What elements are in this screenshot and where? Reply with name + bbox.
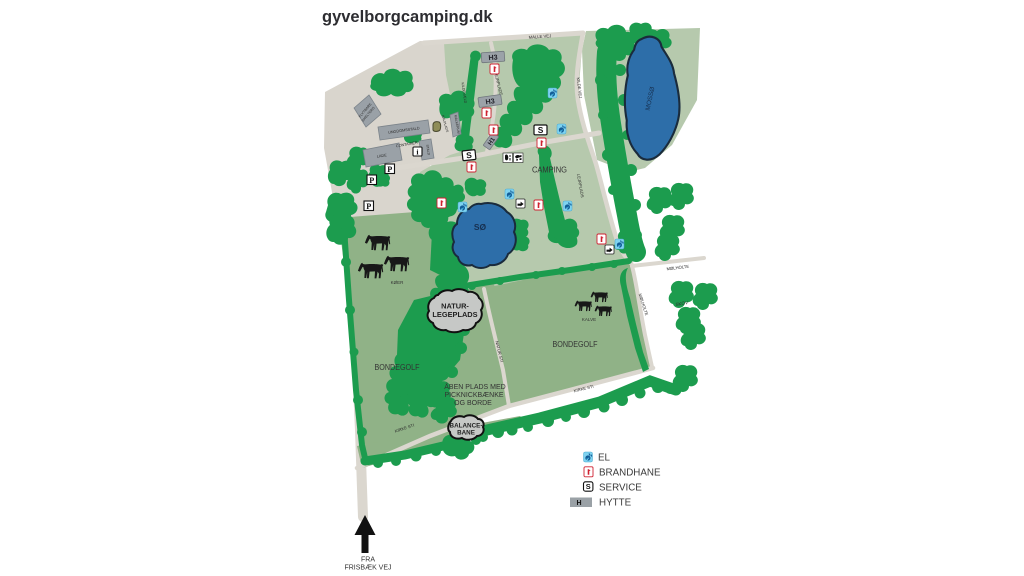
svg-text:SØ: SØ xyxy=(474,222,487,232)
svg-text:SERVICE: SERVICE xyxy=(599,483,642,494)
svg-text:OG BORDE: OG BORDE xyxy=(454,400,492,407)
svg-text:HYTTE: HYTTE xyxy=(599,498,632,509)
svg-text:KØER: KØER xyxy=(391,280,405,285)
svg-text:FRA: FRA xyxy=(361,557,375,564)
svg-text:BRANDHANE: BRANDHANE xyxy=(599,468,661,479)
svg-text:BONDEGOLF: BONDEGOLF xyxy=(375,363,420,372)
svg-text:gyvelborgcamping.dk: gyvelborgcamping.dk xyxy=(322,8,493,26)
svg-text:FRISBÆK VEJ: FRISBÆK VEJ xyxy=(344,565,391,572)
svg-text:EL: EL xyxy=(598,453,611,464)
svg-text:ÅBEN PLADS MED: ÅBEN PLADS MED xyxy=(444,382,505,391)
svg-text:PICKNICKBÆNKE: PICKNICKBÆNKE xyxy=(444,392,503,399)
svg-text:CAMPING: CAMPING xyxy=(532,166,567,175)
svg-text:H: H xyxy=(576,500,581,507)
svg-text:LEGEPLADS: LEGEPLADS xyxy=(432,310,477,319)
svg-text:KALVE: KALVE xyxy=(582,317,596,322)
svg-text:BONDEGOLF: BONDEGOLF xyxy=(553,340,598,349)
svg-text:BANE: BANE xyxy=(457,430,475,437)
svg-text:BALANCE-: BALANCE- xyxy=(450,423,483,430)
